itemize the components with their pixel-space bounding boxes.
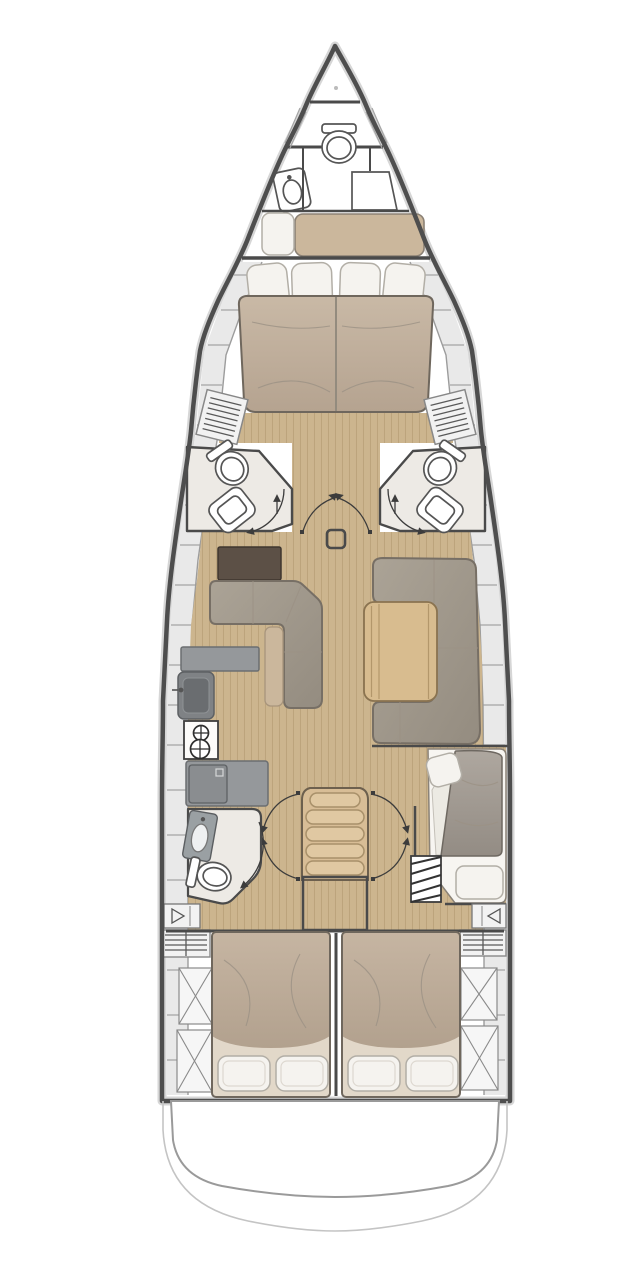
windlass-mark [334,86,338,90]
refrigerator [189,765,227,803]
two-burner-stove [184,721,218,759]
sofa-side-ledge [265,627,283,706]
step-tread [306,861,364,875]
step-tread [306,827,364,841]
hinge-dot [368,530,372,534]
forward-cabin-floor [219,413,453,443]
cabin-entry-steps [411,856,441,902]
x-hatch-starboard-2 [461,1026,498,1090]
step-tread [306,844,364,858]
aft-cabins [166,931,504,1097]
galley-counter-top [181,647,259,671]
berth-duvet [342,932,460,1048]
step-tread [310,793,360,807]
crew-bench-berth [295,214,424,256]
sideboard-cabinet [218,547,281,580]
x-hatch-port-2 [177,1030,212,1092]
hinge-dot [296,877,300,881]
technical-locker-port [164,904,200,928]
berth-duvet [212,932,330,1048]
hinge-dot [300,530,304,534]
pillow [456,866,503,899]
saloon-starboard [364,558,480,744]
corridor-floor [292,443,380,532]
yacht-floor-plan-image [0,0,640,1280]
x-hatch-port-1 [179,968,212,1024]
crew-storage-locker [352,172,397,210]
aft-berth-starboard [342,932,460,1097]
crew-pillow [262,213,294,255]
hinge-dot [296,791,300,795]
hinge-dot [371,877,375,881]
faucet-icon [179,688,184,693]
x-hatch-starboard-1 [461,968,497,1020]
hinge-dot [371,791,375,795]
step-tread [306,810,364,824]
galley-sink [172,672,214,719]
floor-plan-svg [0,0,640,1280]
technical-locker-starboard [472,904,506,928]
crew-toilet-icon [322,124,356,163]
vent-locker-starboard [460,930,506,956]
aft-berth-port [212,932,330,1097]
swim-platform [171,1101,499,1197]
stern-platform [163,1101,507,1231]
dining-table [364,602,437,701]
vent-locker-port [162,930,210,957]
